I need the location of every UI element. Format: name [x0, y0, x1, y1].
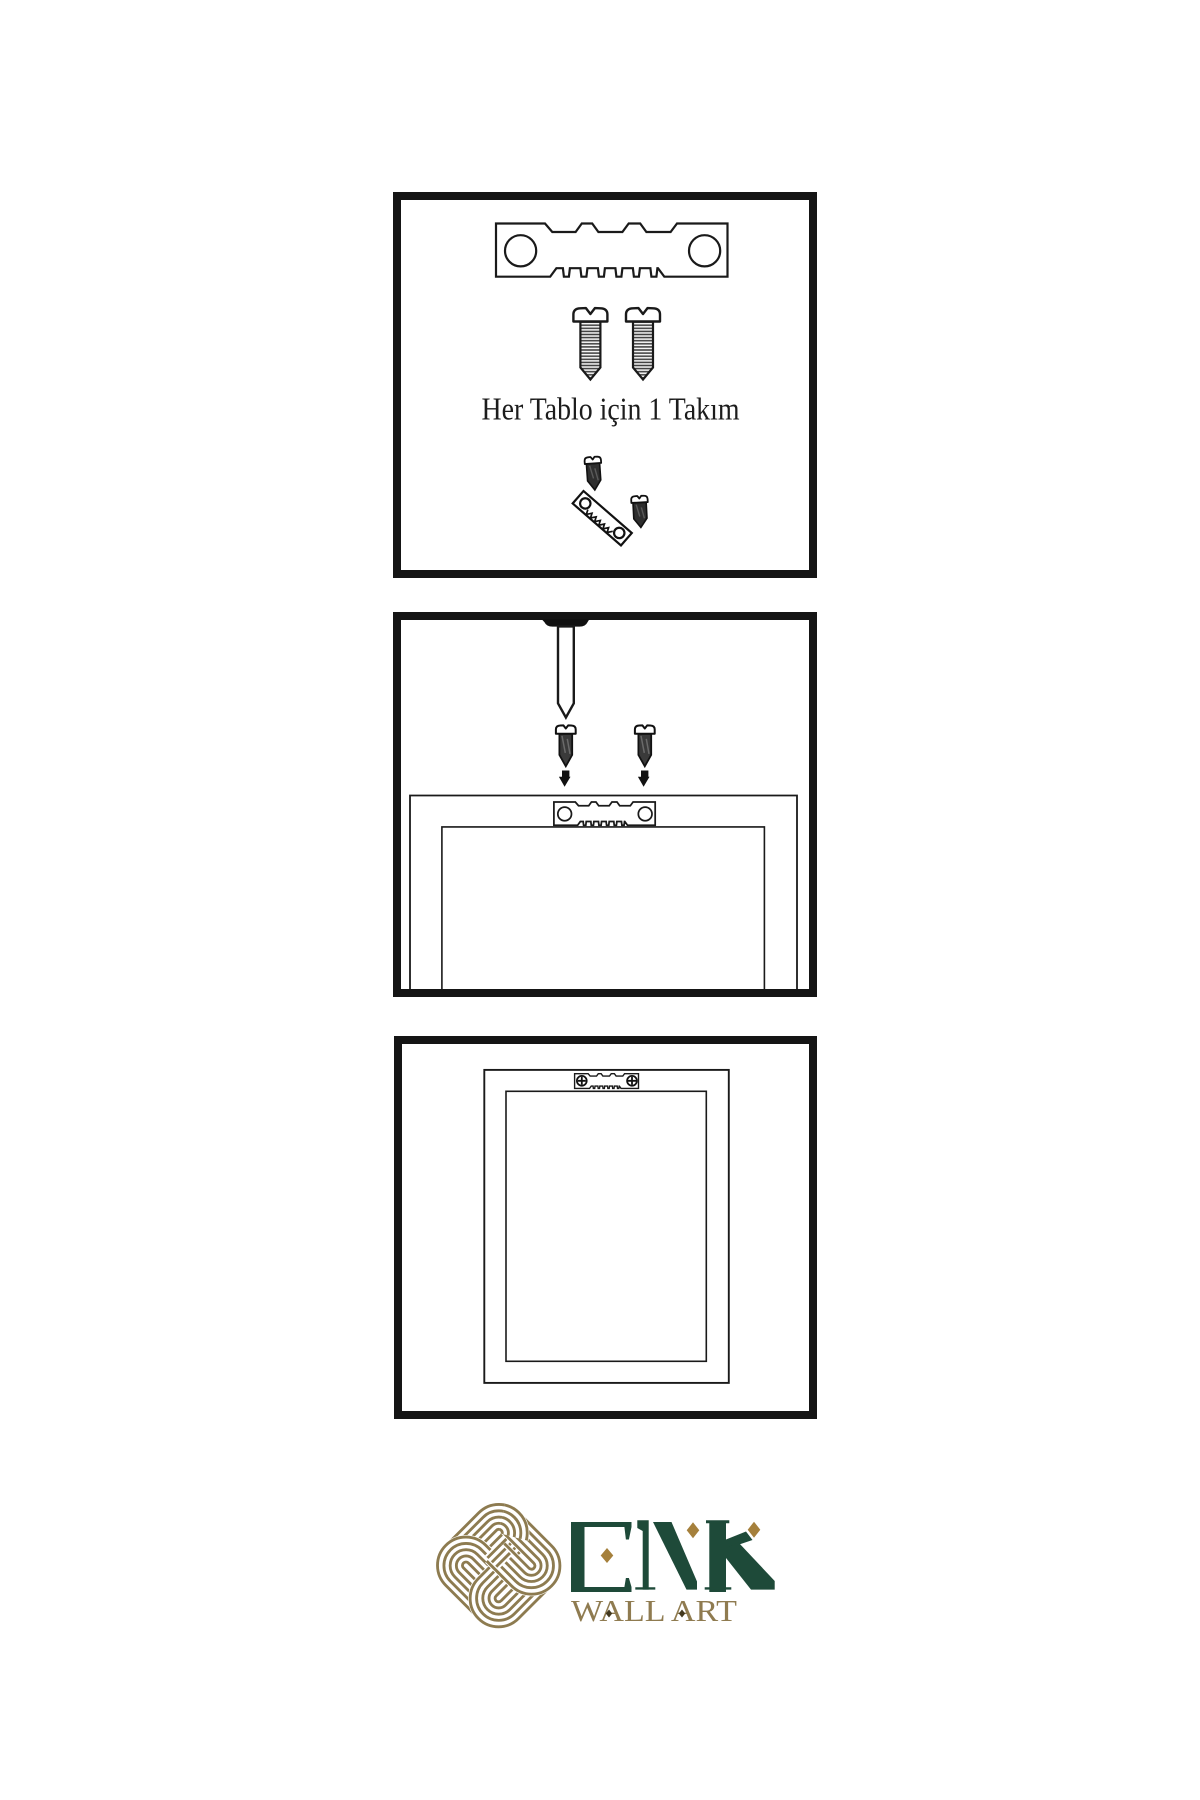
svg-text:WALL ART: WALL ART: [571, 1593, 737, 1628]
svg-text:Her Tablo için 1 Takım: Her Tablo için 1 Takım: [482, 391, 740, 427]
